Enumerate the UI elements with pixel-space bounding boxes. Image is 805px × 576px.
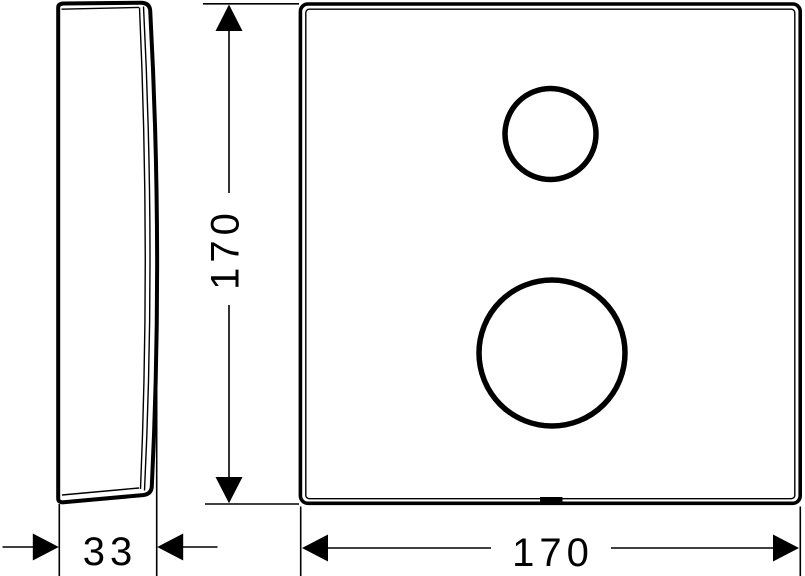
dimension-height: 170 (203, 4, 299, 504)
width-dim-label: 170 (512, 531, 594, 575)
height-arrow-up (216, 5, 243, 32)
dimension-width: 170 (301, 507, 801, 576)
upper-hole-circle (505, 89, 596, 180)
width-arrow-left (302, 535, 328, 562)
depth-arrow-right (157, 534, 183, 561)
plate-bottom-tab (540, 497, 563, 503)
width-arrow-right (773, 535, 799, 562)
technical-drawing: 170 170 33 (0, 0, 805, 576)
depth-dim-label: 33 (83, 530, 138, 574)
height-arrow-down (216, 477, 243, 503)
depth-arrow-left (33, 534, 59, 561)
height-dim-label: 170 (204, 208, 248, 290)
side-view (58, 3, 157, 503)
technical-drawing-canvas: 170 170 33 (0, 0, 805, 576)
front-view (300, 4, 800, 503)
lower-hole-circle (479, 280, 625, 426)
